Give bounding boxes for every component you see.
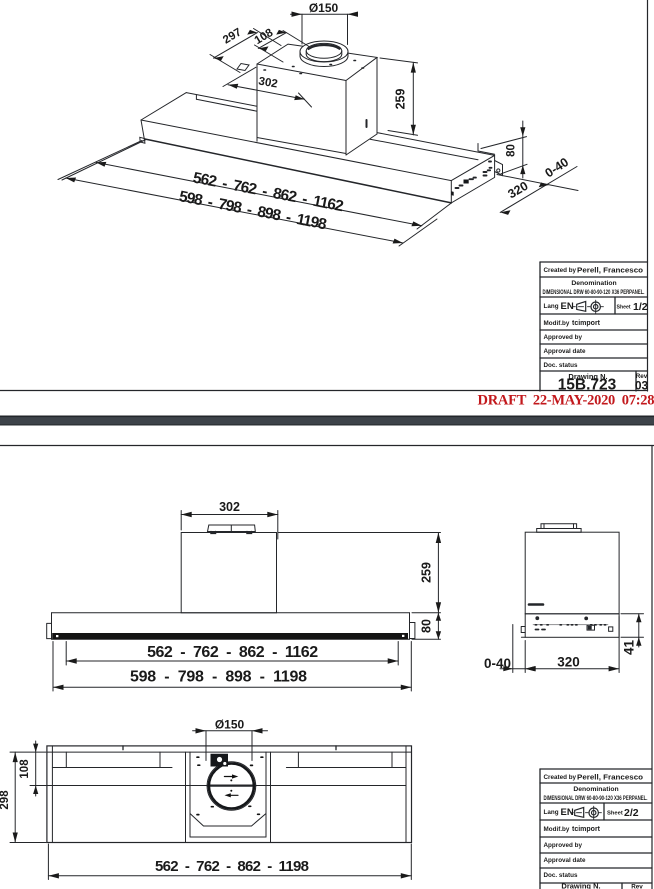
svg-text:tcimport: tcimport bbox=[572, 826, 601, 833]
svg-text:41: 41 bbox=[622, 640, 637, 656]
svg-text:Approval date: Approval date bbox=[544, 857, 586, 864]
svg-text:Approved by: Approved by bbox=[544, 842, 583, 849]
svg-text:DIMENSIONAL DRW 60-80-90-120 X: DIMENSIONAL DRW 60-80-90-120 X36 PERPANE… bbox=[543, 289, 645, 296]
svg-text:Sheet: Sheet bbox=[617, 305, 631, 311]
svg-text:562 - 762 - 862 - 1162: 562 - 762 - 862 - 1162 bbox=[147, 644, 318, 661]
svg-text:108: 108 bbox=[19, 759, 31, 779]
svg-text:Approved by: Approved by bbox=[544, 334, 583, 341]
svg-text:tcimport: tcimport bbox=[572, 320, 601, 327]
svg-text:Ø150: Ø150 bbox=[309, 1, 339, 15]
svg-text:298: 298 bbox=[0, 790, 11, 810]
svg-text:Doc. status: Doc. status bbox=[544, 362, 578, 369]
svg-text:259: 259 bbox=[420, 562, 434, 583]
svg-text:03: 03 bbox=[635, 379, 649, 393]
svg-text:Lang: Lang bbox=[544, 809, 559, 816]
svg-text:Denomination: Denomination bbox=[571, 280, 616, 287]
svg-text:Created by: Created by bbox=[544, 774, 577, 781]
svg-text:Perell, Francesco: Perell, Francesco bbox=[577, 773, 643, 782]
svg-text:80: 80 bbox=[506, 144, 518, 157]
svg-text:302: 302 bbox=[219, 500, 240, 514]
svg-text:Approval date: Approval date bbox=[544, 348, 586, 355]
svg-text:EN: EN bbox=[561, 301, 574, 312]
svg-text:DIMENSIONAL DRW 60-80-90-120 X: DIMENSIONAL DRW 60-80-90-120 X36 PERPANE… bbox=[544, 795, 648, 802]
svg-text:Modif.by: Modif.by bbox=[544, 826, 570, 833]
svg-text:1/2: 1/2 bbox=[633, 301, 648, 313]
svg-text:Modif.by: Modif.by bbox=[544, 320, 570, 327]
svg-text:Created by: Created by bbox=[544, 267, 577, 274]
svg-text:Sheet: Sheet bbox=[607, 811, 623, 817]
svg-text:Denomination: Denomination bbox=[573, 786, 618, 793]
svg-text:15B.723: 15B.723 bbox=[558, 377, 617, 394]
svg-text:80: 80 bbox=[420, 619, 434, 633]
svg-text:562 - 762 - 862 - 1198: 562 - 762 - 862 - 1198 bbox=[155, 858, 309, 875]
svg-text:Perell, Francesco: Perell, Francesco bbox=[577, 266, 643, 275]
svg-text:320: 320 bbox=[557, 655, 580, 670]
svg-text:598 - 798 - 898 - 1198: 598 - 798 - 898 - 1198 bbox=[130, 668, 307, 685]
svg-text:2/2: 2/2 bbox=[624, 807, 639, 819]
svg-text:259: 259 bbox=[394, 89, 408, 110]
svg-text:Doc. status: Doc. status bbox=[544, 872, 578, 879]
svg-text:DRAFT 22-MAY-2020 07:28: DRAFT 22-MAY-2020 07:28 bbox=[478, 393, 654, 409]
svg-text:Lang: Lang bbox=[544, 303, 559, 310]
svg-text:Ø150: Ø150 bbox=[215, 717, 245, 731]
